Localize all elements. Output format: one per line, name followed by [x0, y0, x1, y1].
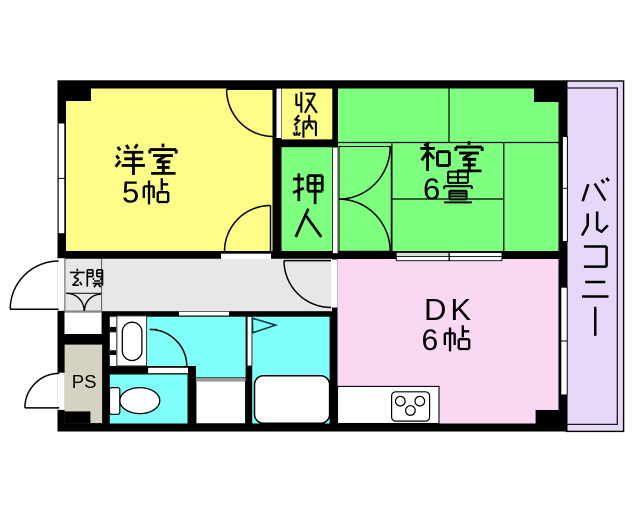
- svg-text:PS: PS: [72, 371, 97, 392]
- svg-text:6: 6: [422, 324, 439, 357]
- svg-text:6: 6: [423, 172, 440, 207]
- svg-text:5: 5: [122, 175, 139, 210]
- svg-text:DK: DK: [424, 292, 475, 327]
